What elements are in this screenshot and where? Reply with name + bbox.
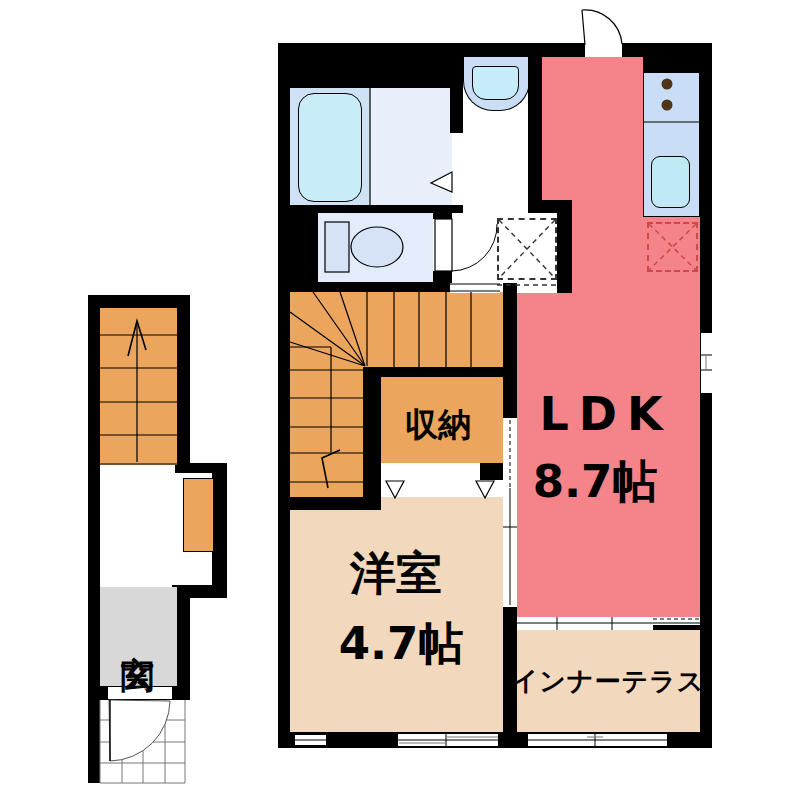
label-ldk-size: 8.7帖 xyxy=(533,459,658,504)
label-storage: 収納 xyxy=(405,408,471,441)
label-inner-terrace: インナーテラス xyxy=(512,668,705,694)
stairs-1f-treads xyxy=(100,321,177,464)
bath-folding-door-icon xyxy=(431,172,452,192)
sliding-door-lines xyxy=(503,420,517,605)
stairs-2f-treads xyxy=(290,292,471,488)
ldk-entry-door xyxy=(582,10,622,45)
kitchen-details xyxy=(643,79,700,271)
bottom-window-lines xyxy=(295,734,667,746)
ldk-terrace-window xyxy=(517,617,700,630)
label-western-name: 洋室 xyxy=(350,550,442,596)
label-entrance: 玄関 xyxy=(122,629,155,641)
right-window-lines xyxy=(701,355,712,370)
floor-plan-canvas: LDK 8.7帖 収納 洋室 4.7帖 インナーテラス 玄関 xyxy=(0,0,800,800)
storage-door-leaf-right xyxy=(476,481,494,498)
storage-door-leaf-left xyxy=(386,481,404,498)
label-ldk-name: LDK xyxy=(539,391,672,437)
entrance-door xyxy=(109,700,170,761)
toilet-icon xyxy=(325,222,403,272)
toilet-door xyxy=(435,219,497,271)
washer-space-diagonals xyxy=(499,220,555,278)
stairs-threshold-lines xyxy=(450,284,500,291)
label-western-size: 4.7帖 xyxy=(339,621,464,666)
